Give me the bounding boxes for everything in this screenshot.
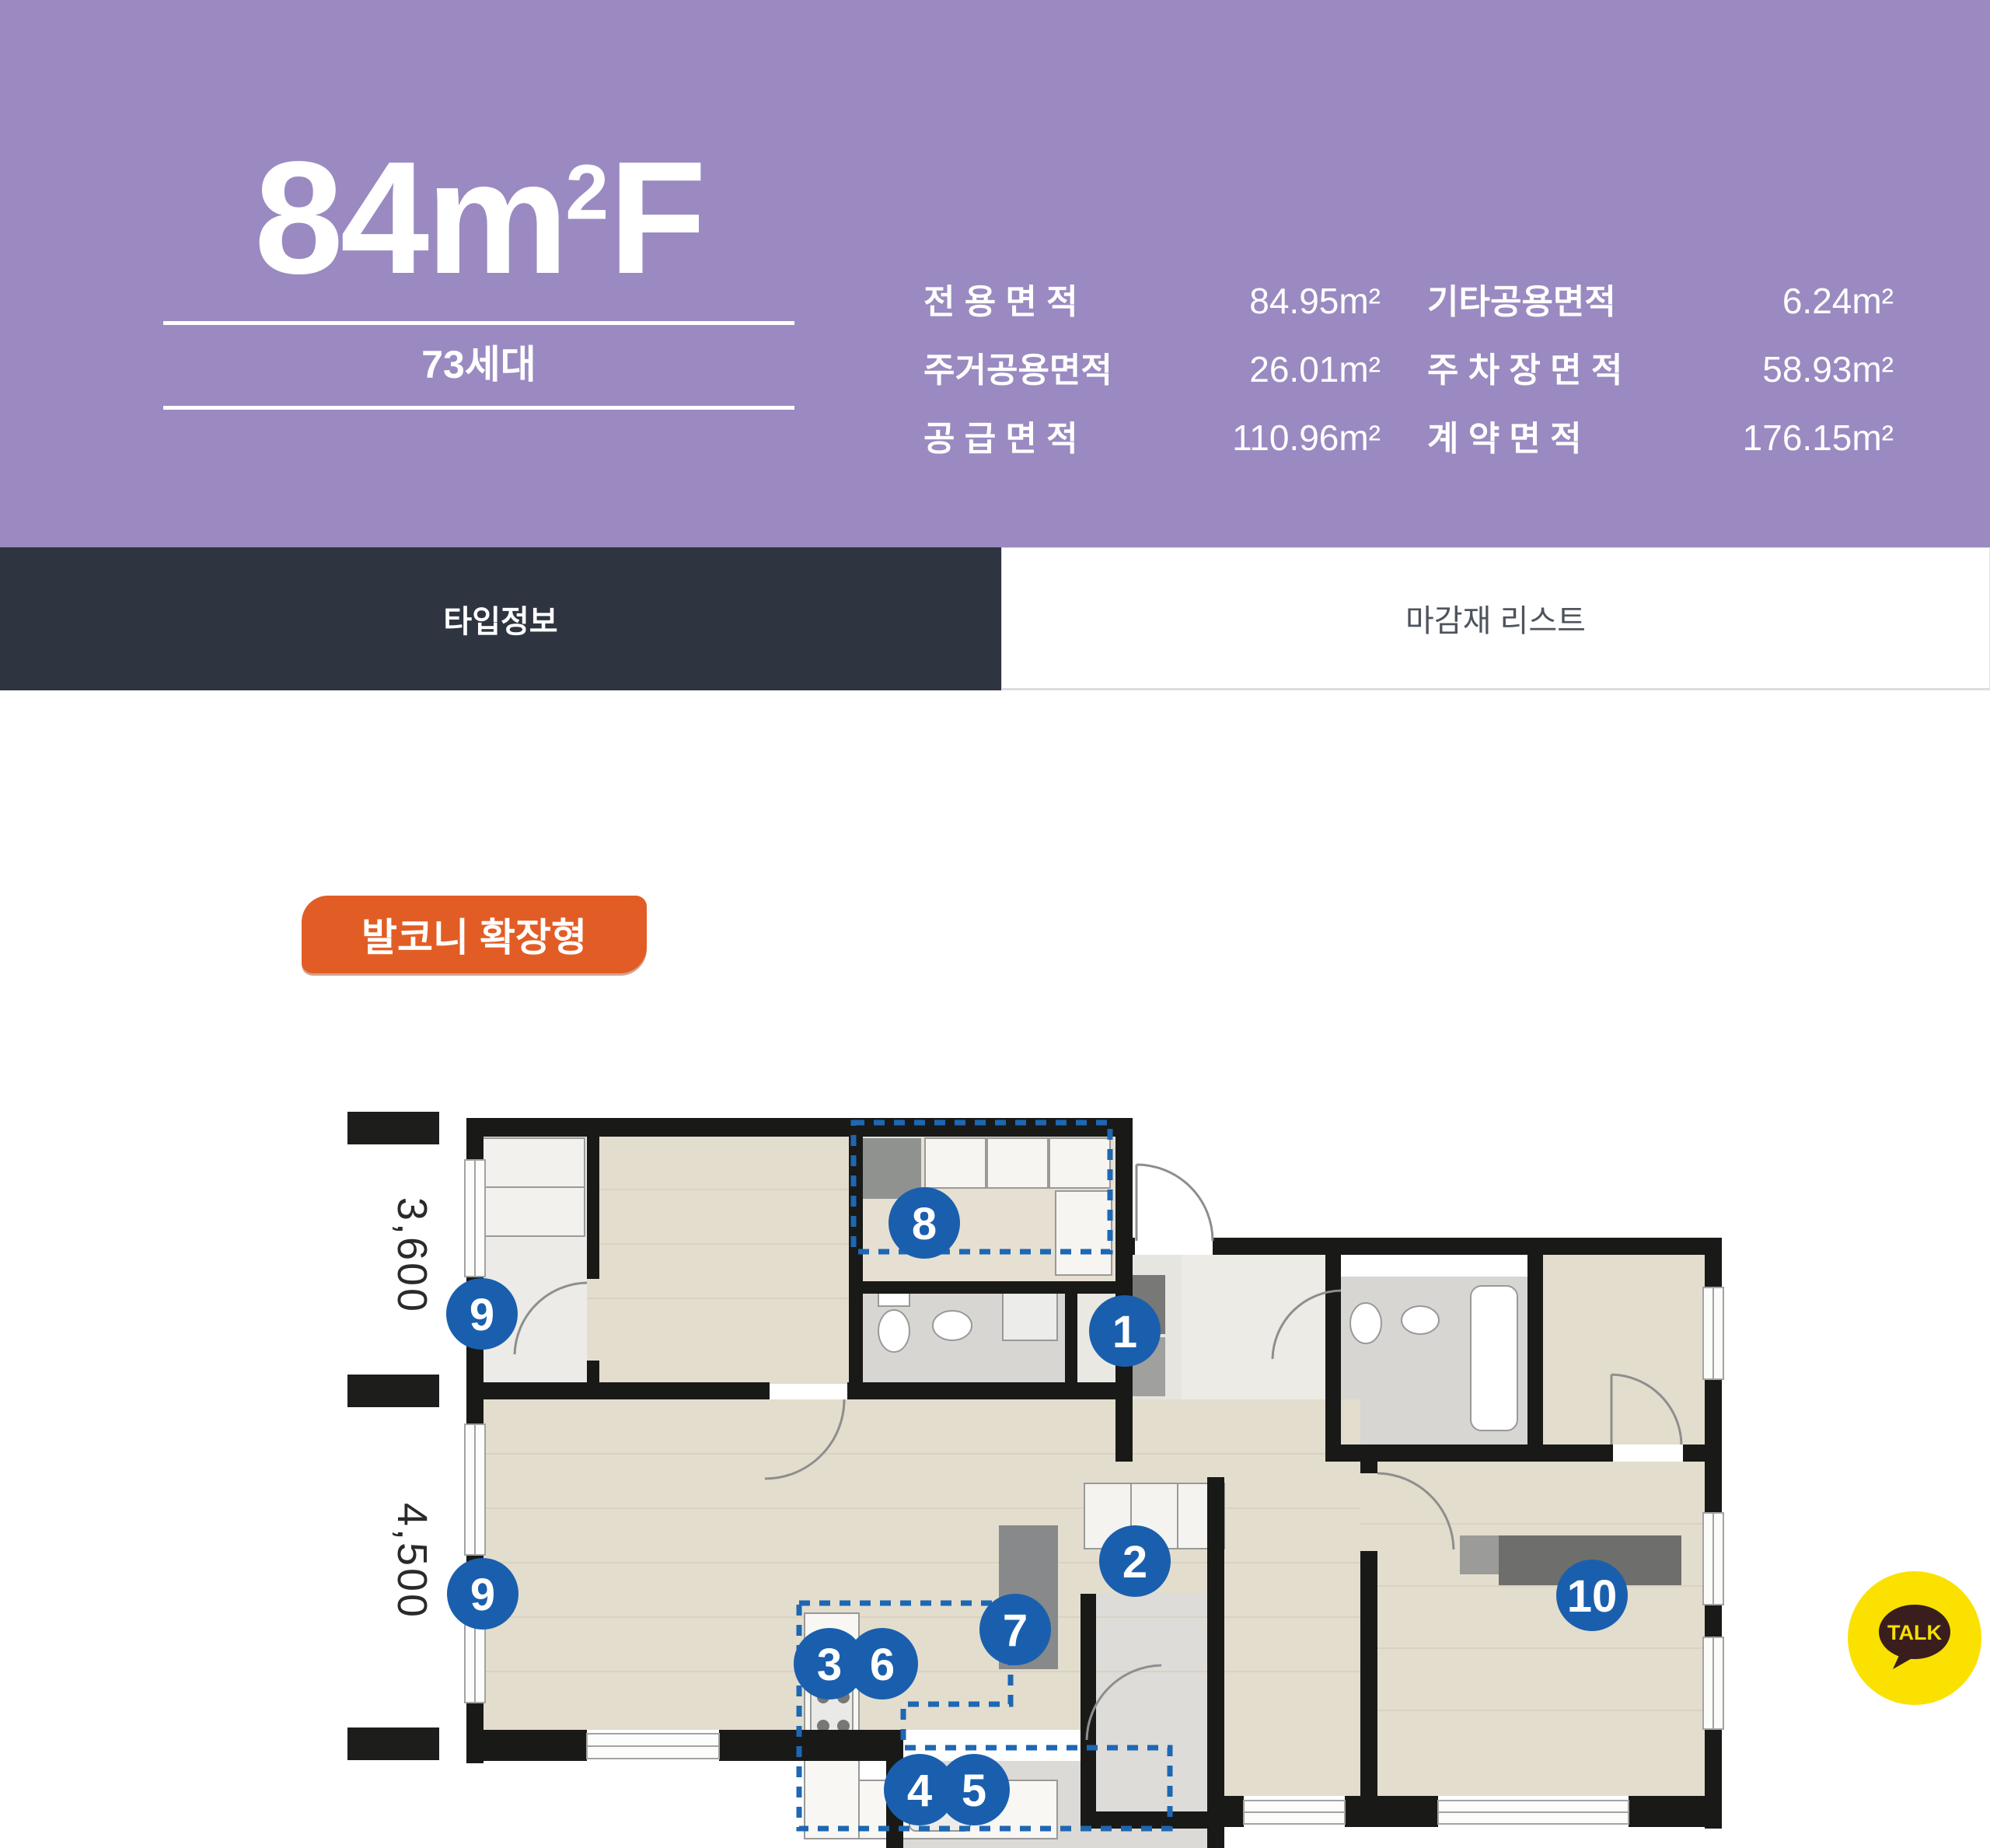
plan-marker-number: 8 [912, 1199, 937, 1249]
kakao-talk-label: TALK [1887, 1621, 1942, 1644]
kakao-talk-icon: TALK [1874, 1601, 1955, 1675]
plan-marker-number: 7 [1003, 1605, 1028, 1656]
plan-marker-number: 4 [907, 1766, 932, 1816]
plan-marker-number: 3 [817, 1640, 842, 1690]
plan-marker-number: 9 [470, 1570, 495, 1620]
plan-dimension-label: 4,500 [389, 1503, 435, 1619]
floor-plan: 3,6004,500 123456789910 [0, 0, 1990, 1848]
plan-marker-number: 10 [1567, 1571, 1618, 1622]
kakao-talk-button[interactable]: TALK [1848, 1571, 1981, 1705]
plan-dimension-labels: 3,6004,500 [389, 1197, 435, 1619]
plan-dimension-label: 3,600 [389, 1197, 435, 1314]
plan-marker-number: 6 [870, 1640, 895, 1690]
plan-marker-number: 1 [1112, 1307, 1137, 1357]
plan-marker-number: 5 [962, 1766, 986, 1816]
plan-marker-number: 9 [470, 1290, 494, 1340]
plan-marker-number: 2 [1122, 1537, 1147, 1588]
